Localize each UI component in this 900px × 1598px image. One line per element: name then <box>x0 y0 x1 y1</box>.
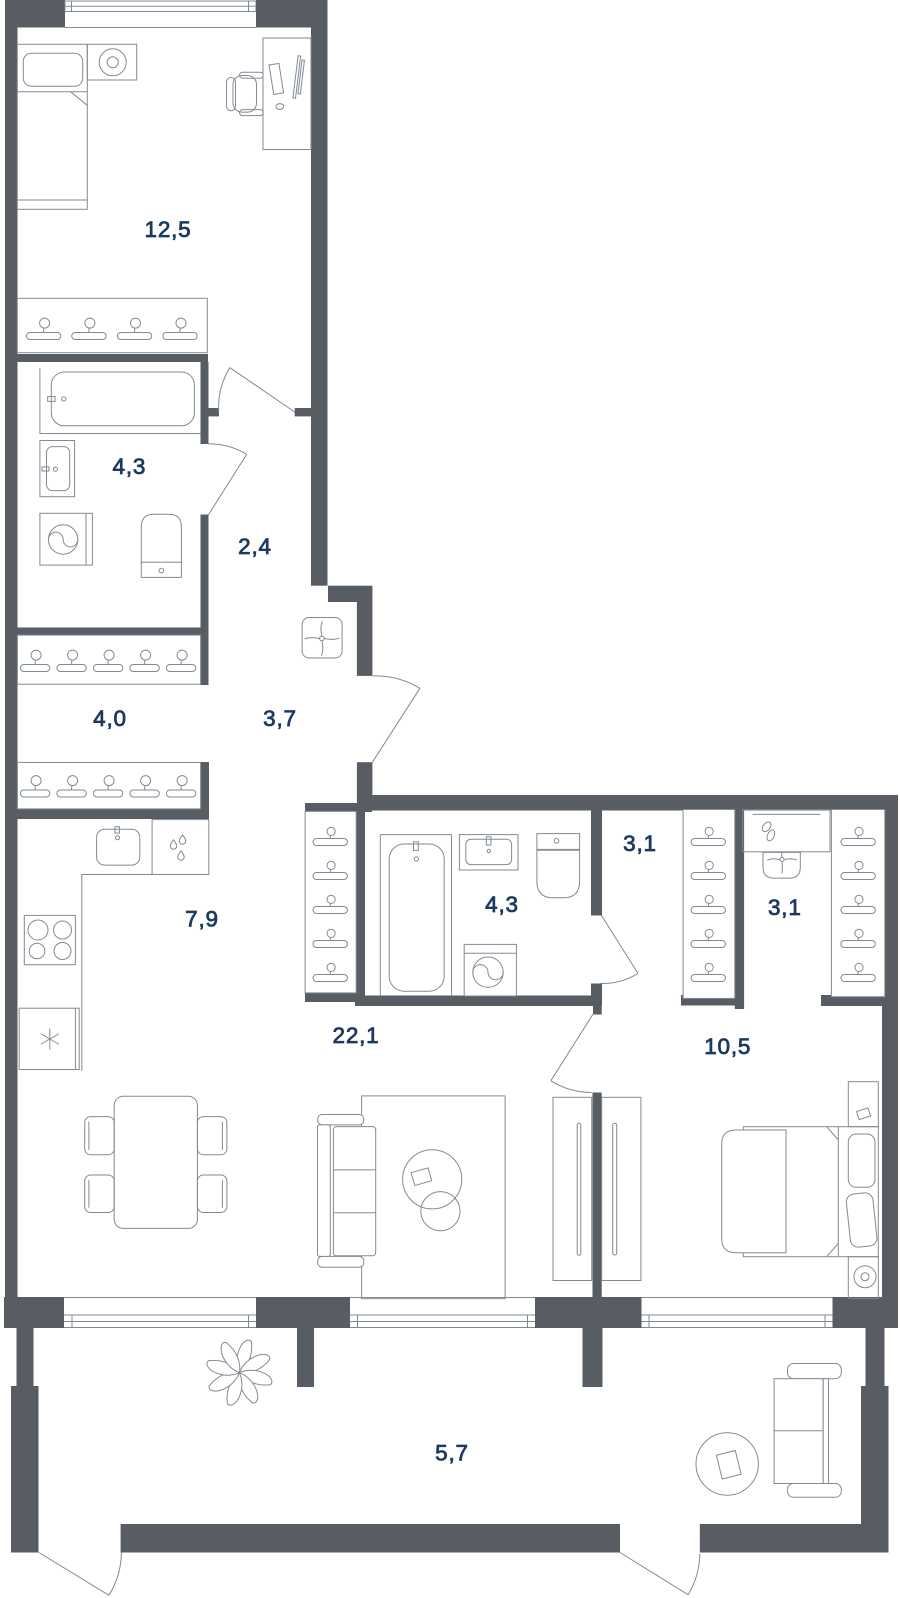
svg-text:22,1: 22,1 <box>333 1023 380 1048</box>
svg-text:3,7: 3,7 <box>263 706 297 731</box>
svg-text:4,3: 4,3 <box>485 892 519 917</box>
svg-text:12,5: 12,5 <box>145 217 192 242</box>
svg-text:4,3: 4,3 <box>113 454 147 479</box>
svg-text:5,7: 5,7 <box>435 1440 469 1465</box>
svg-text:4,0: 4,0 <box>93 706 127 731</box>
svg-text:7,9: 7,9 <box>185 907 219 932</box>
svg-text:3,1: 3,1 <box>768 895 802 920</box>
svg-text:2,4: 2,4 <box>238 534 272 559</box>
svg-text:3,1: 3,1 <box>623 831 657 856</box>
svg-text:10,5: 10,5 <box>704 1034 751 1059</box>
